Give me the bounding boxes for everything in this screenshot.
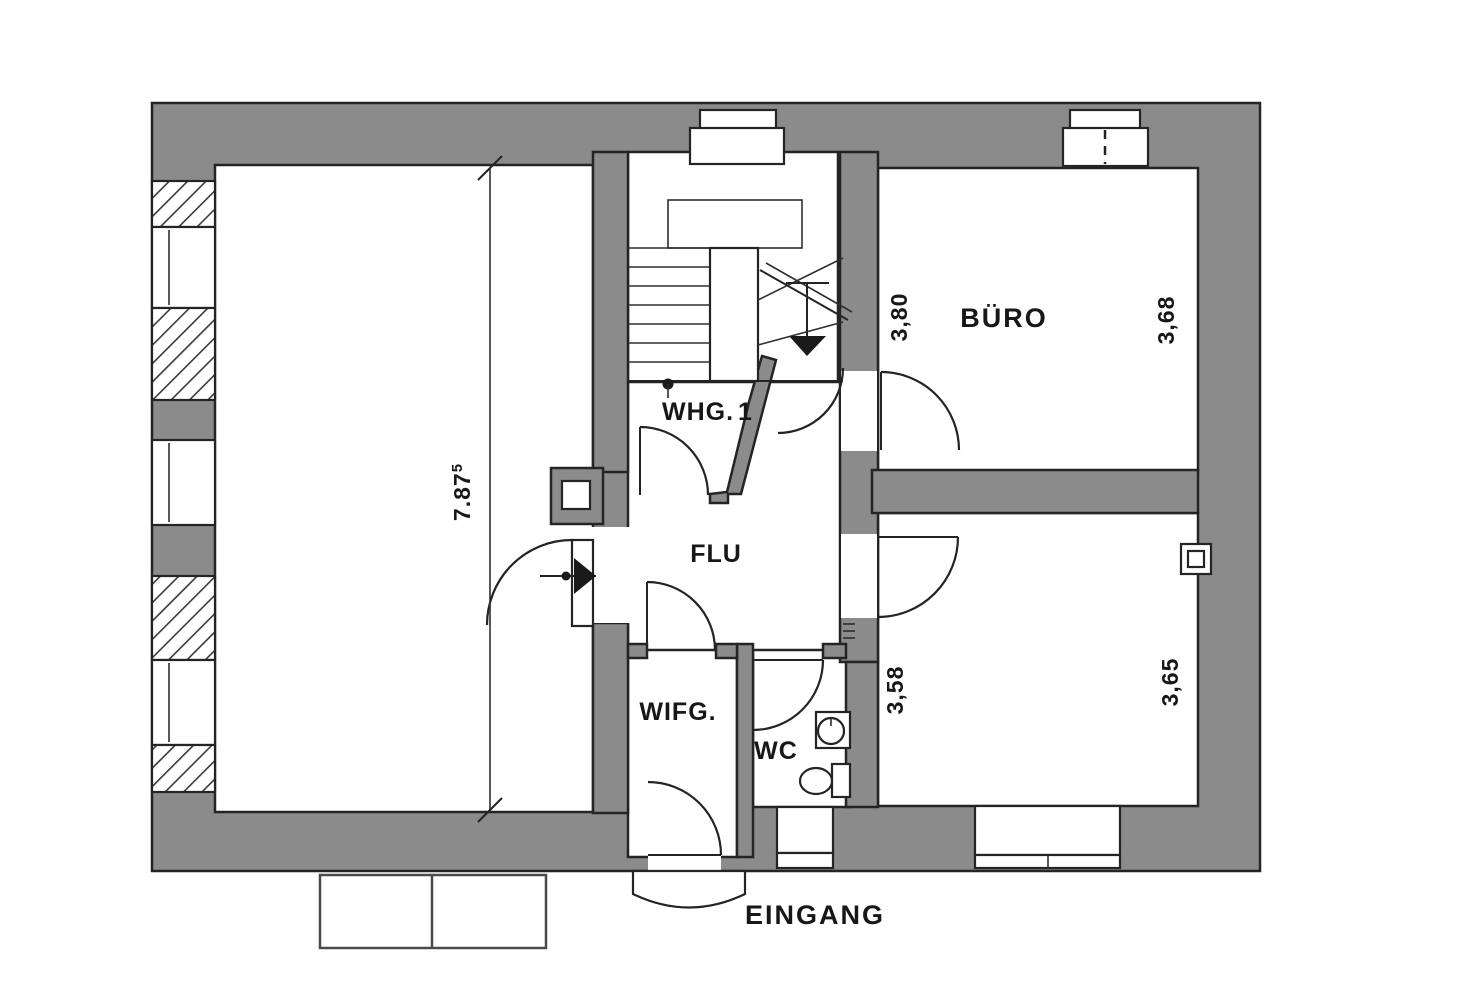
toilet-cistern-icon (832, 764, 850, 797)
wc-window-sill (777, 853, 833, 868)
wall-stub-wc (823, 644, 846, 658)
chimney-top (690, 128, 784, 164)
label-wc: WC (754, 737, 798, 765)
floor-plan-drawing: 7.875 3,80 3,68 3,58 3,65 WHG. 1 FLU WIF… (0, 0, 1469, 1000)
entrance-opening (648, 855, 721, 872)
masonry-hatch (152, 576, 215, 660)
wc-window (777, 807, 833, 853)
wall-between-right-rooms (872, 470, 1198, 513)
dim-zimmer-left: 3,58 (882, 666, 908, 715)
window-left-2 (152, 440, 215, 525)
entrance-vestibule (633, 871, 745, 908)
label-windfang: WIFG. (639, 698, 716, 726)
window-bottom-right (975, 806, 1120, 855)
masonry-hatch (152, 308, 215, 400)
door-marker-dot (562, 572, 571, 581)
wall-stub-windfang-right (716, 644, 737, 658)
stair-core (710, 248, 758, 381)
niche-inner (1188, 551, 1204, 567)
room-windfang (628, 650, 737, 857)
wall-left-of-stairs (593, 152, 628, 472)
wall-left-of-windfang (593, 623, 628, 813)
window-left-1 (152, 227, 215, 308)
floor-plan: 7.875 3,80 3,68 3,58 3,65 WHG. 1 FLU WIF… (0, 0, 1469, 1000)
dim-buero-right: 3,68 (1153, 296, 1179, 345)
label-flur: FLU (690, 540, 742, 568)
room-lower-right (878, 513, 1198, 806)
label-buero: BÜRO (960, 303, 1048, 333)
toilet-bowl-icon (800, 768, 832, 794)
left-room-door-opening (591, 527, 630, 623)
dim-buero-left: 3,80 (886, 293, 912, 342)
left-facade (152, 181, 215, 792)
masonry-hatch (152, 745, 215, 792)
label-whg1-number: 1 (738, 398, 753, 426)
label-eingang: EINGANG (745, 900, 885, 930)
masonry-hatch (152, 181, 215, 227)
room-left-large (215, 165, 593, 812)
label-whg1: WHG. (662, 398, 734, 426)
dim-zimmer-right: 3,65 (1157, 658, 1183, 707)
chimney-flue (562, 481, 590, 509)
buero-door-opening (841, 371, 877, 451)
wall-stub-windfang-left (628, 644, 647, 658)
lower-room-door-opening (841, 534, 877, 618)
window-left-3 (152, 660, 215, 745)
wall-windfang-wc (737, 644, 753, 857)
